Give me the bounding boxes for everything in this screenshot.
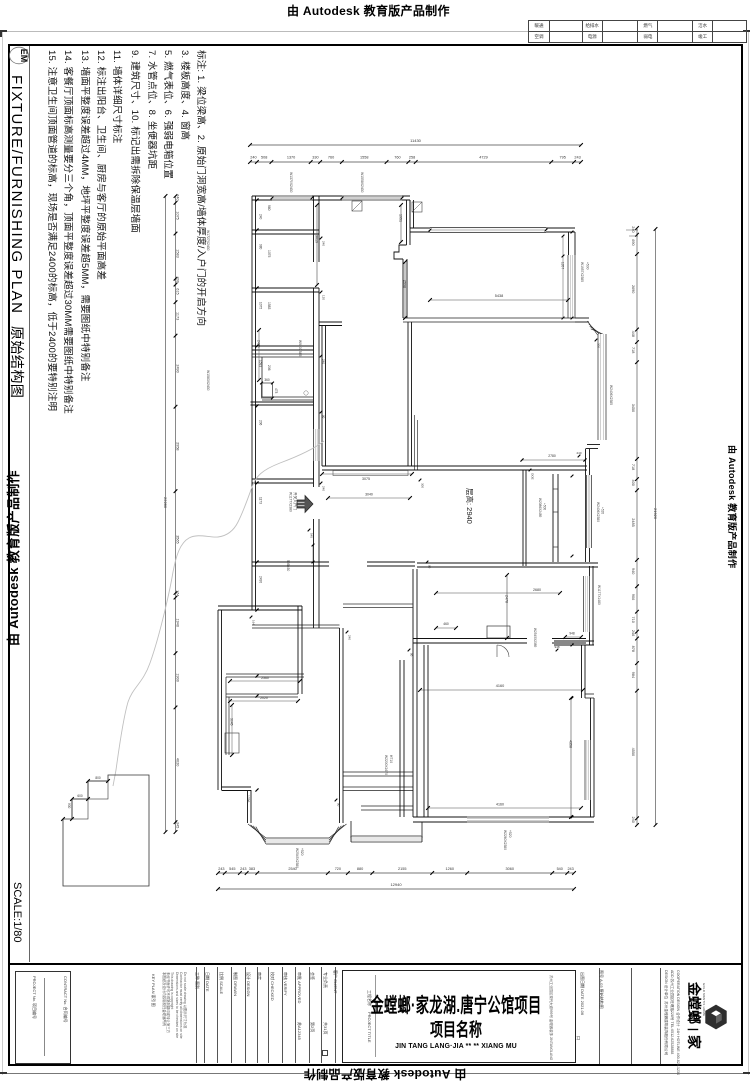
svg-text:+520: +520 — [601, 507, 605, 514]
svg-text:1583: 1583 — [176, 249, 180, 257]
svg-text:W1177X2380: W1177X2380 — [289, 492, 293, 512]
svg-text:4550: 4550 — [631, 748, 635, 756]
svg-text:22280: 22280 — [163, 497, 168, 509]
svg-text:3619: 3619 — [315, 235, 319, 243]
svg-text:+500: +500 — [586, 262, 590, 270]
svg-text:243: 243 — [574, 156, 580, 160]
svg-text:2958: 2958 — [176, 442, 180, 450]
svg-text:1957: 1957 — [561, 262, 565, 269]
svg-text:243: 243 — [567, 867, 573, 871]
svg-text:W2260X2380: W2260X2380 — [503, 830, 507, 850]
svg-text:258: 258 — [409, 156, 415, 160]
svg-text:90: 90 — [322, 415, 326, 419]
svg-text:720: 720 — [335, 867, 341, 871]
svg-text:1370: 1370 — [287, 156, 295, 160]
svg-text:2155: 2155 — [398, 867, 406, 871]
svg-text:5438: 5438 — [495, 294, 503, 298]
svg-text:330: 330 — [312, 156, 318, 160]
svg-text:2485: 2485 — [631, 518, 635, 526]
svg-text:710: 710 — [631, 617, 635, 623]
svg-text:1558: 1558 — [360, 156, 368, 160]
svg-text:460: 460 — [443, 622, 449, 626]
svg-text:948: 948 — [569, 632, 575, 636]
svg-text:W2200X1670: W2200X1670 — [384, 755, 388, 775]
svg-text:3060: 3060 — [506, 867, 514, 871]
svg-text:206: 206 — [176, 277, 180, 283]
svg-text:540: 540 — [557, 867, 563, 871]
svg-text:240: 240 — [259, 214, 263, 220]
svg-text:2680: 2680 — [533, 588, 541, 592]
svg-text:545: 545 — [310, 533, 314, 538]
svg-text:1173: 1173 — [176, 312, 180, 320]
svg-text:473: 473 — [274, 388, 278, 394]
svg-text:2598: 2598 — [403, 280, 407, 288]
svg-text:800: 800 — [95, 776, 101, 780]
svg-text:545: 545 — [229, 867, 235, 871]
svg-text:W2086X2485: W2086X2485 — [538, 498, 542, 518]
svg-text:W1727X2430: W1727X2430 — [206, 230, 210, 251]
svg-text:595±30: 595±30 — [286, 560, 290, 571]
svg-text:2690: 2690 — [631, 285, 635, 293]
svg-text:3040: 3040 — [365, 493, 373, 497]
svg-text:开关入户门: 开关入户门 — [293, 492, 298, 510]
svg-text:11430: 11430 — [410, 138, 422, 143]
svg-text:4729: 4729 — [479, 156, 487, 160]
svg-text:1796: 1796 — [246, 795, 250, 803]
svg-text:层高: 2940: 层高: 2940 — [465, 488, 475, 524]
svg-text:240: 240 — [348, 635, 352, 640]
svg-text:W2545X2385: W2545X2385 — [533, 628, 537, 648]
svg-text:980: 980 — [267, 205, 271, 211]
svg-text:1260: 1260 — [445, 867, 453, 871]
svg-text:1075: 1075 — [267, 250, 271, 258]
svg-text:600: 600 — [77, 794, 83, 798]
svg-text:900: 900 — [67, 803, 71, 809]
svg-text:400: 400 — [631, 480, 635, 486]
svg-text:1173: 1173 — [259, 497, 263, 504]
svg-text:W1177X1480: W1177X1480 — [597, 585, 601, 605]
svg-text:W2545X2380: W2545X2380 — [295, 848, 299, 868]
svg-text:2020: 2020 — [260, 696, 268, 700]
svg-text:4358: 4358 — [569, 740, 573, 748]
svg-text:984: 984 — [631, 672, 635, 678]
svg-text:718: 718 — [631, 347, 635, 353]
svg-text:760: 760 — [394, 156, 400, 160]
svg-text:90: 90 — [337, 803, 341, 807]
svg-text:240: 240 — [322, 486, 326, 491]
svg-text:1900: 1900 — [176, 673, 180, 681]
svg-text:W1583X2430: W1583X2430 — [206, 370, 210, 391]
svg-text:795: 795 — [559, 156, 565, 160]
svg-text:906: 906 — [631, 594, 635, 600]
svg-text:300: 300 — [597, 343, 601, 348]
svg-text:508: 508 — [261, 156, 267, 160]
svg-text:243: 243 — [218, 867, 224, 871]
svg-text:345: 345 — [176, 822, 180, 828]
svg-text:206: 206 — [267, 365, 271, 371]
svg-text:2780: 2780 — [548, 454, 556, 458]
svg-text:2490: 2490 — [259, 576, 263, 583]
svg-text:2478: 2478 — [505, 595, 509, 603]
svg-text:240: 240 — [576, 451, 581, 455]
svg-text:2490: 2490 — [176, 364, 180, 372]
svg-text:+520: +520 — [300, 848, 304, 856]
svg-text:1946: 1946 — [176, 619, 180, 627]
svg-text:W2406X2380: W2406X2380 — [596, 502, 600, 522]
svg-text:164: 164 — [252, 620, 256, 625]
svg-text:1583: 1583 — [267, 302, 271, 310]
svg-text:3450: 3450 — [631, 404, 635, 412]
svg-text:W1558X2430: W1558X2430 — [360, 172, 364, 193]
svg-text:90: 90 — [410, 653, 414, 657]
svg-text:3075: 3075 — [362, 477, 370, 481]
svg-text:+500: +500 — [543, 503, 547, 510]
svg-text:878: 878 — [631, 646, 635, 652]
svg-text:240: 240 — [631, 226, 635, 232]
svg-text:12940: 12940 — [390, 882, 402, 887]
svg-text:246: 246 — [631, 630, 635, 636]
svg-text:300: 300 — [421, 483, 425, 488]
svg-text:1583: 1583 — [259, 360, 263, 367]
svg-text:1075: 1075 — [259, 302, 263, 309]
svg-text:3565: 3565 — [176, 535, 180, 543]
svg-text:360: 360 — [264, 378, 270, 382]
svg-text:980: 980 — [259, 244, 263, 250]
svg-text:690: 690 — [631, 239, 635, 245]
svg-text:4160: 4160 — [496, 803, 504, 807]
svg-text:240: 240 — [250, 156, 256, 160]
svg-text:120: 120 — [322, 295, 326, 300]
svg-text:OOE: OOE — [531, 473, 535, 480]
svg-text:240: 240 — [322, 241, 326, 246]
svg-text:718: 718 — [631, 464, 635, 470]
svg-text:448: 448 — [631, 331, 635, 337]
svg-text:948: 948 — [554, 645, 559, 649]
svg-text:90: 90 — [428, 565, 432, 569]
svg-text:+520: +520 — [508, 830, 512, 838]
svg-text:W920X585: W920X585 — [298, 340, 302, 356]
svg-text:240: 240 — [322, 359, 326, 364]
svg-text:3045: 3045 — [230, 718, 234, 726]
svg-text:4020: 4020 — [176, 758, 180, 766]
svg-text:206: 206 — [259, 420, 263, 426]
svg-text:1075: 1075 — [176, 211, 180, 219]
svg-text:615: 615 — [176, 288, 180, 294]
svg-text:HT10: HT10 — [389, 755, 393, 763]
svg-text:21920: 21920 — [653, 508, 658, 520]
svg-text:4160: 4160 — [496, 684, 504, 688]
svg-text:240: 240 — [176, 194, 180, 200]
svg-text:W1957X2385: W1957X2385 — [580, 262, 584, 282]
svg-text:240: 240 — [631, 817, 635, 823]
svg-text:383: 383 — [249, 867, 255, 871]
svg-text:2360: 2360 — [261, 676, 269, 680]
svg-text:1951: 1951 — [399, 214, 403, 222]
svg-text:164: 164 — [176, 590, 180, 596]
svg-text:W2406X2385: W2406X2385 — [609, 385, 613, 405]
svg-text:W1370X2430: W1370X2430 — [289, 172, 293, 193]
svg-text:880: 880 — [357, 867, 363, 871]
svg-text:940: 940 — [631, 568, 635, 574]
svg-text:243: 243 — [240, 867, 246, 871]
svg-text:760: 760 — [328, 156, 334, 160]
